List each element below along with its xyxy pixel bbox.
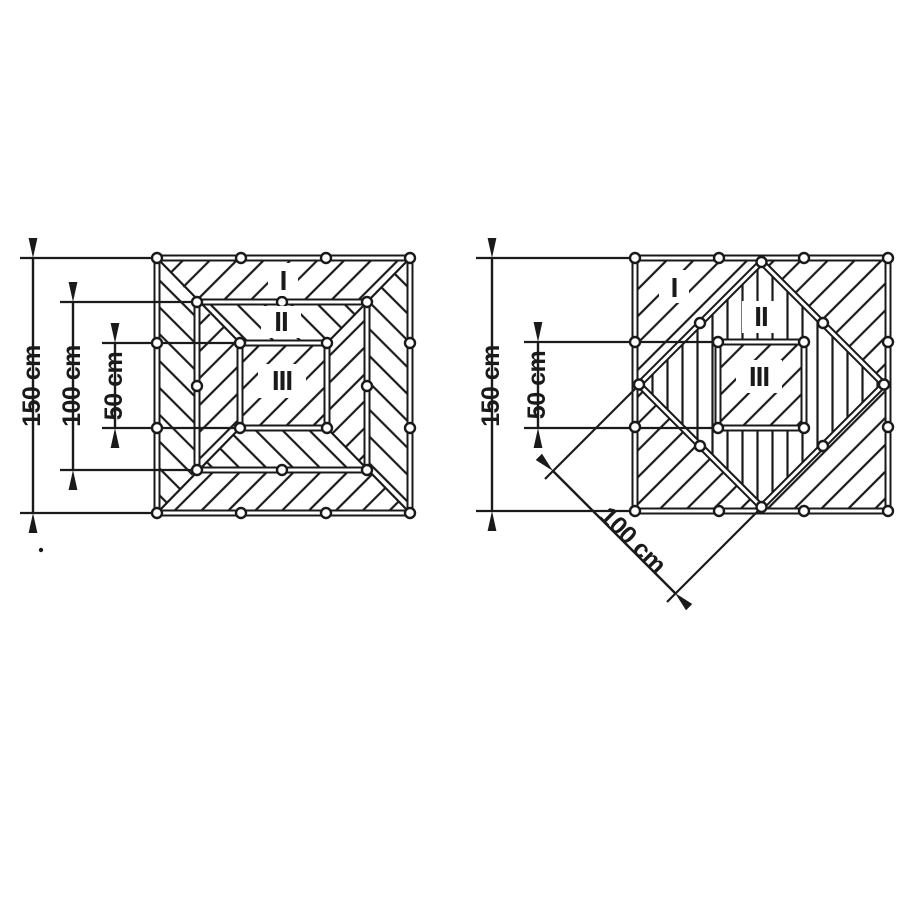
nested-frames-diagram: 150 cm 100 cm 50 cm I II III	[0, 0, 900, 900]
right-zone1-label: I	[671, 272, 678, 303]
peg	[236, 508, 246, 518]
peg	[277, 465, 287, 475]
peg	[818, 318, 828, 328]
peg	[630, 422, 640, 432]
peg	[192, 297, 202, 307]
left-zone1-hatch-bottom	[157, 470, 410, 513]
peg	[152, 338, 162, 348]
peg	[630, 253, 640, 263]
right-dim-150-label: 150 cm	[477, 345, 505, 427]
peg	[321, 508, 331, 518]
peg	[883, 422, 893, 432]
left-dim-150-label: 150 cm	[18, 345, 46, 427]
right-dim-50-label: 50 cm	[523, 351, 551, 419]
peg	[879, 380, 889, 390]
peg	[322, 423, 332, 433]
peg	[362, 297, 372, 307]
peg	[405, 508, 415, 518]
right-diagram: 150 cm 50 cm 100 cm I II III	[476, 253, 893, 602]
left-diagram: 150 cm 100 cm 50 cm I II III	[18, 253, 415, 518]
peg	[152, 253, 162, 263]
peg	[405, 253, 415, 263]
peg	[799, 423, 809, 433]
peg	[634, 380, 644, 390]
right-ext-100-upper	[545, 385, 639, 479]
peg	[713, 337, 723, 347]
peg	[799, 337, 809, 347]
peg	[713, 423, 723, 433]
peg	[714, 506, 724, 516]
scanned-diagram-page: 150 cm 100 cm 50 cm I II III	[0, 0, 900, 900]
peg	[192, 465, 202, 475]
peg	[152, 508, 162, 518]
right-zone2-label: II	[754, 301, 768, 332]
peg	[695, 318, 705, 328]
right-zone3-label: III	[749, 361, 769, 392]
peg	[322, 338, 332, 348]
peg	[405, 423, 415, 433]
right-ext-100-lower	[667, 508, 761, 602]
peg	[362, 381, 372, 391]
peg	[757, 502, 767, 512]
peg	[630, 337, 640, 347]
peg	[883, 337, 893, 347]
peg	[321, 253, 331, 263]
left-dim-50-label: 50 cm	[100, 352, 128, 420]
peg	[883, 253, 893, 263]
peg	[362, 465, 372, 475]
left-zone2-label: II	[274, 306, 288, 337]
peg	[714, 253, 724, 263]
peg	[799, 506, 809, 516]
peg	[883, 506, 893, 516]
peg	[799, 253, 809, 263]
peg	[235, 423, 245, 433]
peg	[630, 506, 640, 516]
peg	[405, 338, 415, 348]
left-dim-100-label: 100 cm	[58, 345, 86, 427]
left-zone3-label: III	[272, 365, 292, 396]
peg	[235, 338, 245, 348]
peg	[757, 257, 767, 267]
scan-speck	[39, 548, 43, 552]
peg	[695, 441, 705, 451]
peg	[152, 423, 162, 433]
peg	[818, 441, 828, 451]
peg	[236, 253, 246, 263]
left-zone1-label: I	[280, 265, 287, 296]
peg	[192, 381, 202, 391]
